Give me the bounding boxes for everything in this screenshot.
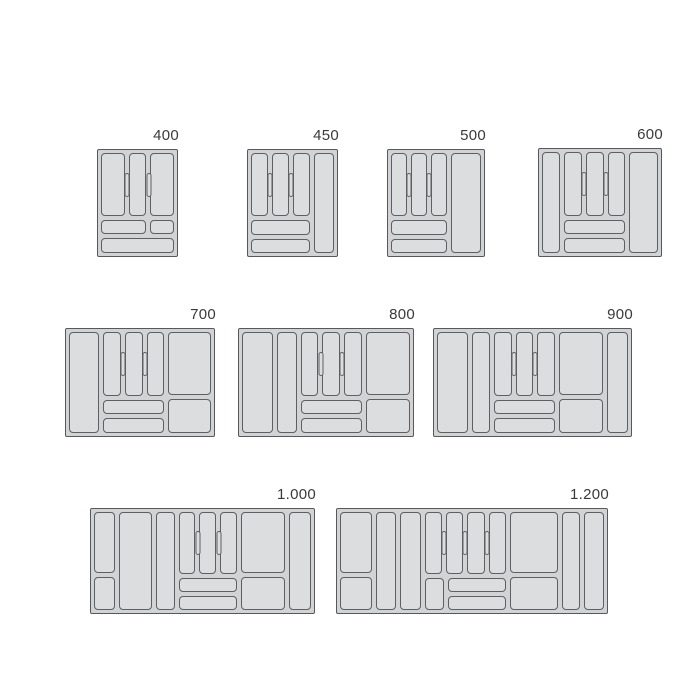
tray-size-label: 800 — [389, 307, 415, 323]
cutlery-slot — [391, 153, 407, 216]
cutlery-slot — [301, 332, 319, 396]
tray-column — [119, 512, 152, 610]
tray-size-label: 900 — [607, 307, 633, 323]
divider-pill-icon — [289, 173, 294, 197]
tray-column — [289, 512, 311, 610]
cutlery-section — [179, 512, 238, 610]
tray-400: 400 — [97, 149, 178, 257]
small-square-compartment — [425, 578, 444, 610]
tray-column — [314, 153, 334, 253]
cutlery-bottom-trays — [425, 578, 507, 610]
tray-column — [451, 153, 481, 253]
tray-size-label: 400 — [153, 128, 179, 144]
cutlery-bottom-trays — [391, 220, 447, 253]
divider-pill-icon — [582, 172, 587, 196]
lower-compartment — [340, 577, 372, 610]
cutlery-bottom-trays — [564, 220, 625, 253]
divider-pill-icon — [484, 531, 489, 555]
divider-pill-icon — [125, 173, 130, 197]
cutlery-slot — [489, 512, 506, 574]
tall-compartment — [119, 512, 152, 610]
tray-column — [542, 152, 560, 253]
tray-column — [562, 512, 580, 610]
cutlery-section — [494, 332, 555, 433]
tray-column — [607, 332, 628, 433]
wide-tray-compartment — [448, 596, 506, 610]
cutlery-slot — [199, 512, 216, 574]
cutlery-bottom-trays — [101, 220, 174, 253]
divider-pill-icon — [427, 173, 432, 197]
tall-compartment — [629, 152, 658, 253]
divider-pill-icon — [340, 352, 345, 376]
split-row — [101, 220, 174, 233]
wide-tray-compartment — [251, 220, 310, 234]
tray-column — [584, 512, 604, 610]
cutlery-vertical-slots — [391, 153, 447, 216]
cutlery-vertical-slots — [103, 332, 164, 396]
cutlery-slot — [494, 332, 512, 396]
cutlery-slot — [608, 152, 626, 216]
cutlery-slot — [586, 152, 604, 216]
lower-compartment — [559, 399, 603, 433]
cutlery-section — [103, 332, 164, 433]
tray-900: 900 — [433, 328, 632, 437]
tray-size-label: 450 — [313, 128, 339, 144]
small-tray-compartment — [150, 220, 174, 233]
tray-compartments — [391, 153, 481, 253]
cutlery-slot — [150, 153, 174, 216]
upper-compartment — [366, 332, 410, 395]
tray-column — [241, 512, 285, 610]
divider-pill-icon — [407, 173, 412, 197]
tray-size-label: 1.200 — [570, 487, 609, 503]
lower-compartment — [366, 399, 410, 433]
cutlery-vertical-slots — [494, 332, 555, 396]
tall-compartment — [584, 512, 604, 610]
cutlery-slot — [147, 332, 165, 396]
divider-pill-icon — [463, 531, 468, 555]
tall-compartment — [277, 332, 297, 433]
tray-compartments — [101, 153, 174, 253]
tray-700: 700 — [65, 328, 215, 437]
stacked-rows — [448, 578, 506, 610]
divider-pill-icon — [195, 531, 200, 555]
tray-1200: 1.200 — [336, 508, 608, 614]
tray-size-label: 500 — [460, 128, 486, 144]
tray-column — [277, 332, 297, 433]
cutlery-bottom-trays — [179, 578, 238, 610]
divider-pill-icon — [441, 531, 446, 555]
tray-compartments — [242, 332, 410, 433]
tray-size-label: 1.000 — [277, 487, 316, 503]
cutlery-slot — [101, 153, 125, 216]
wide-tray-compartment — [103, 418, 164, 433]
wide-tray-compartment — [564, 220, 625, 235]
tray-compartments — [437, 332, 628, 433]
tall-compartment — [289, 512, 311, 610]
tray-size-label: 600 — [637, 127, 663, 143]
tray-column — [510, 512, 557, 610]
tray-500: 500 — [387, 149, 485, 257]
divider-pill-icon — [533, 352, 538, 376]
cutlery-vertical-slots — [425, 512, 507, 574]
cutlery-slot — [516, 332, 534, 396]
tray-column — [376, 512, 396, 610]
wide-tray-compartment — [301, 400, 362, 415]
tall-compartment — [376, 512, 396, 610]
divider-pill-icon — [146, 173, 151, 197]
cutlery-slot — [446, 512, 463, 574]
cutlery-bottom-trays — [251, 220, 310, 253]
cutlery-section — [564, 152, 625, 253]
lower-compartment — [168, 399, 211, 433]
cutlery-vertical-slots — [251, 153, 310, 216]
cutlery-slot — [125, 332, 143, 396]
cutlery-vertical-slots — [101, 153, 174, 216]
tall-compartment — [562, 512, 580, 610]
divider-pill-icon — [121, 352, 126, 376]
tray-column — [472, 332, 490, 433]
divider-pill-icon — [318, 352, 323, 376]
tall-compartment — [437, 332, 468, 433]
tray-column — [69, 332, 99, 433]
cutlery-slot — [293, 153, 310, 216]
cutlery-slot — [425, 512, 442, 574]
cutlery-vertical-slots — [564, 152, 625, 216]
tall-compartment — [451, 153, 481, 253]
cutlery-vertical-slots — [179, 512, 238, 574]
wide-tray-compartment — [494, 418, 555, 433]
cutlery-section — [101, 153, 174, 253]
upper-compartment — [168, 332, 211, 395]
tray-800: 800 — [238, 328, 414, 437]
tall-compartment — [314, 153, 334, 253]
cutlery-slot — [344, 332, 362, 396]
divider-pill-icon — [142, 352, 147, 376]
tray-column — [168, 332, 211, 433]
cutlery-bottom-trays — [103, 400, 164, 433]
tray-compartments — [69, 332, 211, 433]
tall-compartment — [69, 332, 99, 433]
upper-compartment — [340, 512, 372, 573]
cutlery-slot — [129, 153, 147, 216]
cutlery-slot — [564, 152, 582, 216]
upper-compartment — [241, 512, 285, 573]
tray-column — [437, 332, 468, 433]
cutlery-slot — [251, 153, 268, 216]
tray-column — [340, 512, 372, 610]
tray-600: 600 — [538, 148, 662, 257]
wide-tray-compartment — [101, 238, 174, 253]
tray-column — [156, 512, 175, 610]
tray-column — [559, 332, 603, 433]
lower-compartment — [510, 577, 557, 610]
divider-pill-icon — [216, 531, 221, 555]
divider-pill-icon — [268, 173, 273, 197]
wide-tray-compartment — [564, 238, 625, 253]
wide-tray-compartment — [494, 400, 555, 415]
divider-pill-icon — [603, 172, 608, 196]
cutlery-slot — [537, 332, 555, 396]
tall-compartment — [472, 332, 490, 433]
tray-column — [629, 152, 658, 253]
tall-compartment — [607, 332, 628, 433]
wide-tray-compartment — [179, 596, 238, 610]
cutlery-slot — [467, 512, 484, 574]
cutlery-slot — [322, 332, 340, 396]
lower-compartment — [241, 577, 285, 610]
cutlery-slot — [272, 153, 289, 216]
cutlery-section — [251, 153, 310, 253]
tall-compartment — [542, 152, 560, 253]
tray-column — [94, 512, 115, 610]
tray-column — [400, 512, 420, 610]
wide-tray-compartment — [251, 239, 310, 253]
tray-compartments — [340, 512, 604, 610]
wide-tray-compartment — [391, 239, 447, 253]
tray-compartments — [542, 152, 658, 253]
cutlery-slot — [411, 153, 427, 216]
wide-tray-compartment — [179, 578, 238, 592]
cutlery-vertical-slots — [301, 332, 362, 396]
cutlery-slot — [179, 512, 196, 574]
upper-compartment — [510, 512, 557, 573]
upper-compartment — [94, 512, 115, 573]
wide-tray-compartment — [101, 220, 146, 233]
tray-1000: 1.000 — [90, 508, 315, 614]
tray-compartments — [94, 512, 311, 610]
tray-column — [242, 332, 273, 433]
lower-compartment — [94, 577, 115, 610]
tall-compartment — [400, 512, 420, 610]
cutlery-slot — [103, 332, 121, 396]
tall-compartment — [242, 332, 273, 433]
cutlery-section — [301, 332, 362, 433]
cutlery-bottom-trays — [301, 400, 362, 433]
tray-450: 450 — [247, 149, 338, 257]
tray-column — [366, 332, 410, 433]
cutlery-section — [425, 512, 507, 610]
tall-compartment — [156, 512, 175, 610]
divider-pill-icon — [511, 352, 516, 376]
cutlery-section — [391, 153, 447, 253]
wide-tray-compartment — [391, 220, 447, 234]
wide-tray-compartment — [448, 578, 506, 592]
wide-tray-compartment — [103, 400, 164, 415]
cutlery-slot — [220, 512, 237, 574]
tray-compartments — [251, 153, 334, 253]
cutlery-tray-size-chart: 4004505006007008009001.0001.200 — [0, 0, 700, 700]
cutlery-bottom-trays — [494, 400, 555, 433]
tray-size-label: 700 — [190, 307, 216, 323]
upper-compartment — [559, 332, 603, 395]
wide-tray-compartment — [301, 418, 362, 433]
cutlery-slot — [431, 153, 447, 216]
